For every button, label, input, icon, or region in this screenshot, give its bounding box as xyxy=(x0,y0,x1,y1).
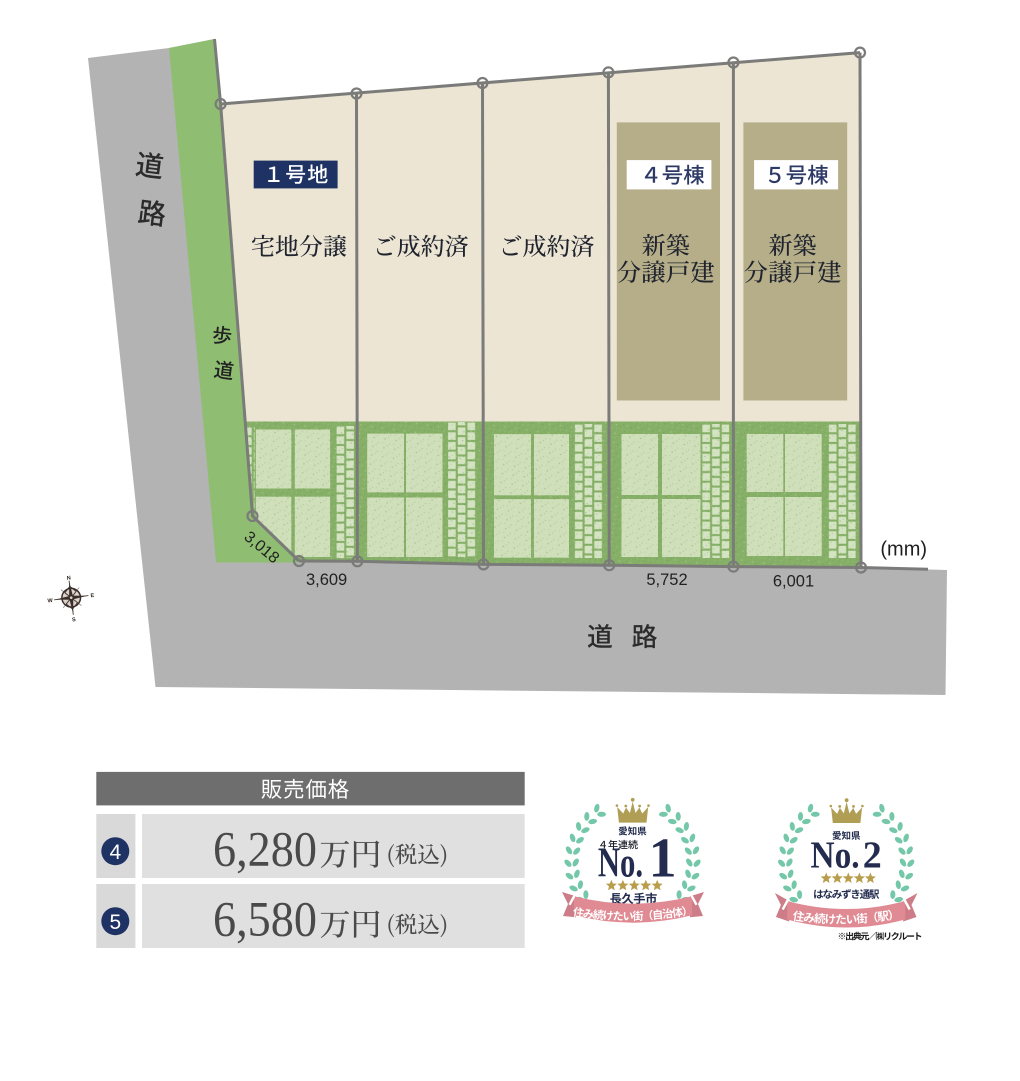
svg-text:E: E xyxy=(90,593,95,599)
svg-text:(mm): (mm) xyxy=(880,539,927,561)
svg-text:6,001: 6,001 xyxy=(773,573,814,591)
svg-text:5,752: 5,752 xyxy=(646,571,687,589)
svg-text:No.: No. xyxy=(598,841,643,887)
svg-text:S: S xyxy=(72,617,77,623)
svg-text:2: 2 xyxy=(863,834,882,876)
svg-text:5: 5 xyxy=(109,911,121,934)
svg-text:3,609: 3,609 xyxy=(306,571,347,589)
svg-text:6,280: 6,280 xyxy=(213,820,317,876)
svg-text:4: 4 xyxy=(109,841,121,864)
svg-text:W: W xyxy=(47,598,54,605)
svg-text:No.: No. xyxy=(811,834,860,876)
svg-text:1: 1 xyxy=(649,828,677,890)
svg-text:N: N xyxy=(67,575,72,581)
svg-text:6,580: 6,580 xyxy=(213,890,317,946)
